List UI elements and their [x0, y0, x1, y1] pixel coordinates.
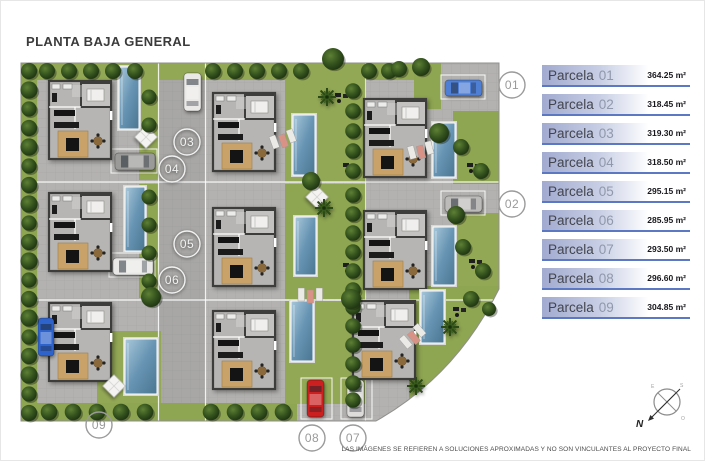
car [307, 380, 324, 417]
parcel-number: 01 [599, 68, 614, 83]
house-floorplan [364, 211, 427, 289]
parcel-number: 08 [599, 271, 614, 286]
parcel-number: 06 [599, 213, 614, 228]
site-ground [21, 63, 499, 421]
palm-tree [318, 88, 336, 106]
car [184, 73, 201, 111]
legend-item-parcela-06[interactable]: Parcela06285.95 m² [542, 210, 690, 232]
compass-south-label: S [680, 383, 684, 389]
parcel-number: 04 [599, 155, 614, 170]
legend-item-parcela-03[interactable]: Parcela03319.30 m² [542, 123, 690, 145]
parcel-label: Parcela [548, 242, 594, 257]
legend-item-parcela-05[interactable]: Parcela05295.15 m² [542, 181, 690, 203]
plan-marker-02[interactable]: 02 [499, 191, 525, 217]
compass-rose-icon: N E S O [629, 375, 699, 437]
plan-marker-08[interactable]: 08 [299, 425, 325, 451]
marker-number: 09 [92, 418, 106, 432]
parcel-area: 319.30 m² [647, 128, 688, 138]
swimming-pool [291, 113, 317, 177]
swimming-pool [419, 289, 446, 345]
parcel-label: Parcela [548, 184, 594, 199]
parcel-area: 285.95 m² [647, 215, 688, 225]
compass-east-label: E [651, 384, 655, 390]
parcel-area: 295.15 m² [647, 186, 688, 196]
marker-number: 03 [180, 135, 194, 149]
compass-west-label: O [681, 416, 685, 422]
car [38, 318, 54, 356]
site-plan-page: PLANTA BAJA GENERAL 010203040506070809 P… [0, 0, 705, 461]
parcel-label: Parcela [548, 155, 594, 170]
swimming-pool [289, 299, 315, 363]
parcel-label: Parcela [548, 126, 594, 141]
parcel-label: Parcela [548, 68, 594, 83]
parcel-area: 304.85 m² [647, 302, 688, 312]
house-floorplan [213, 93, 276, 171]
house-floorplan [213, 311, 276, 389]
legend-item-parcela-07[interactable]: Parcela07293.50 m² [542, 239, 690, 261]
legend-item-parcela-02[interactable]: Parcela02318.45 m² [542, 94, 690, 116]
parcel-label: Parcela [548, 97, 594, 112]
sun-loungers [298, 288, 323, 303]
marker-number: 02 [505, 197, 519, 211]
legend-item-parcela-09[interactable]: Parcela09304.85 m² [542, 297, 690, 319]
marker-number: 04 [165, 162, 179, 176]
parcel-label: Parcela [548, 271, 594, 286]
parcel-number: 05 [599, 184, 614, 199]
house-floorplan [364, 99, 427, 177]
palm-tree [441, 318, 459, 336]
marker-number: 05 [180, 237, 194, 251]
legend-item-parcela-08[interactable]: Parcela08296.60 m² [542, 268, 690, 290]
parcel-area: 364.25 m² [647, 70, 688, 80]
car [115, 153, 155, 170]
swimming-pool [431, 225, 457, 287]
plan-marker-01[interactable]: 01 [499, 72, 525, 98]
swimming-pool [123, 337, 159, 396]
disclaimer-text: LAS IMÁGENES SE REFIEREN A SOLUCIONES AP… [341, 446, 691, 453]
parcel-number: 07 [599, 242, 614, 257]
house-floorplan [49, 193, 112, 271]
marker-number: 07 [346, 431, 360, 445]
parcel-area: 318.50 m² [647, 157, 688, 167]
parcel-area: 296.60 m² [647, 273, 688, 283]
swimming-pool [293, 215, 318, 277]
legend-item-parcela-04[interactable]: Parcela04318.50 m² [542, 152, 690, 174]
car [445, 80, 482, 96]
parcel-number: 09 [599, 300, 614, 315]
house-floorplan [49, 81, 112, 159]
marker-number: 01 [505, 78, 519, 92]
parcel-label: Parcela [548, 300, 594, 315]
palm-tree [407, 377, 425, 395]
parcel-number: 03 [599, 126, 614, 141]
parcel-label: Parcela [548, 213, 594, 228]
parcel-legend: Parcela01364.25 m²Parcela02318.45 m²Parc… [542, 65, 690, 319]
parcel-area: 293.50 m² [647, 244, 688, 254]
legend-item-parcela-01[interactable]: Parcela01364.25 m² [542, 65, 690, 87]
palm-tree [315, 199, 333, 217]
parcel-number: 02 [599, 97, 614, 112]
compass-north-label: N [636, 419, 644, 430]
parcel-area: 318.45 m² [647, 99, 688, 109]
marker-number: 06 [165, 273, 179, 287]
house-floorplan [213, 208, 276, 286]
marker-number: 08 [305, 431, 319, 445]
house-floorplan [49, 303, 112, 381]
